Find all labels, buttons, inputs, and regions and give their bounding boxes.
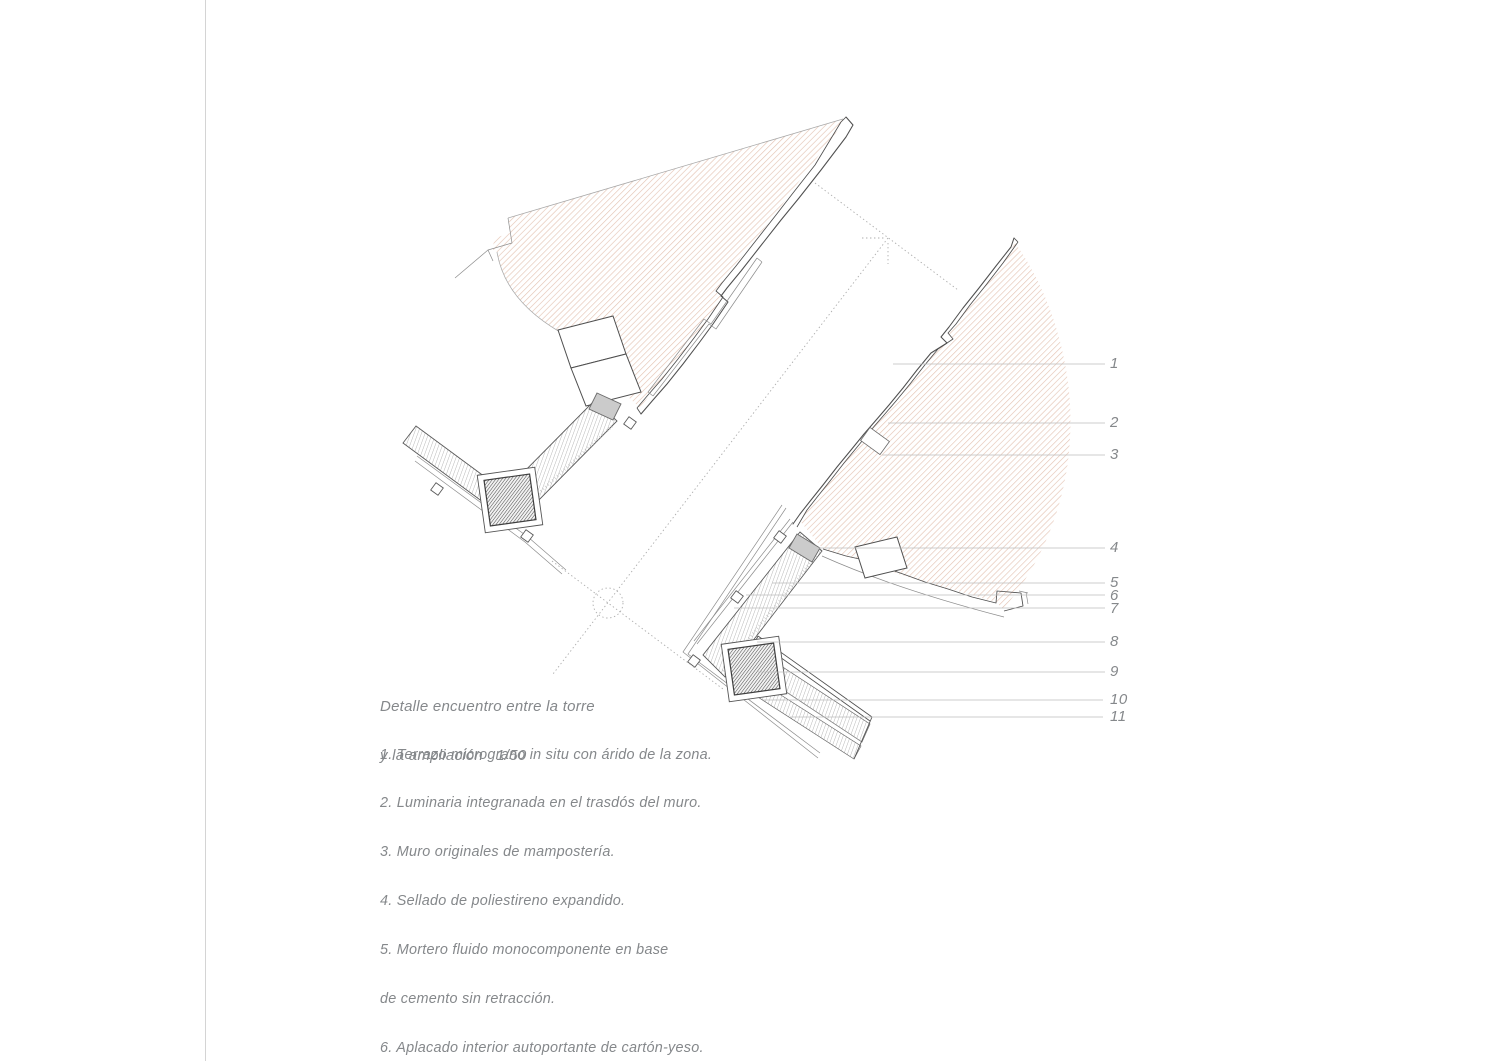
legend-list: 1. Terrazo micrograno in situ con árido …	[380, 714, 712, 1061]
architectural-detail-sheet: 1 2 3 4 5 6 7 8 9 10 11 Detalle encuentr…	[0, 0, 1500, 1061]
concrete-support-right	[721, 636, 787, 702]
legend-line: 1. Terrazo micrograno in situ con árido …	[380, 747, 712, 763]
callout-label-1: 1	[1110, 355, 1150, 372]
tower-interior-hatch-fan	[455, 119, 843, 408]
legend-line: 6. Aplacado interior autoportante de car…	[380, 1040, 712, 1056]
callout-label-10: 10	[1110, 691, 1150, 708]
legend-line: de cemento sin retracción.	[380, 991, 712, 1007]
callout-label-11: 11	[1110, 708, 1150, 725]
callout-label-4: 4	[1110, 539, 1150, 556]
callout-label-9: 9	[1110, 663, 1150, 680]
callout-label-8: 8	[1110, 633, 1150, 650]
callout-label-3: 3	[1110, 446, 1150, 463]
concrete-support-left	[477, 467, 543, 533]
construction-detail-drawing	[0, 0, 1500, 1061]
callout-label-2: 2	[1110, 414, 1150, 431]
legend-line: 5. Mortero fluido monocomponente en base	[380, 942, 712, 958]
legend-line: 3. Muro originales de mampostería.	[380, 844, 712, 860]
legend-line: 2. Luminaria integranada en el trasdós d…	[380, 795, 712, 811]
callout-label-7: 7	[1110, 600, 1150, 617]
legend-line: 4. Sellado de poliestireno expandido.	[380, 893, 712, 909]
